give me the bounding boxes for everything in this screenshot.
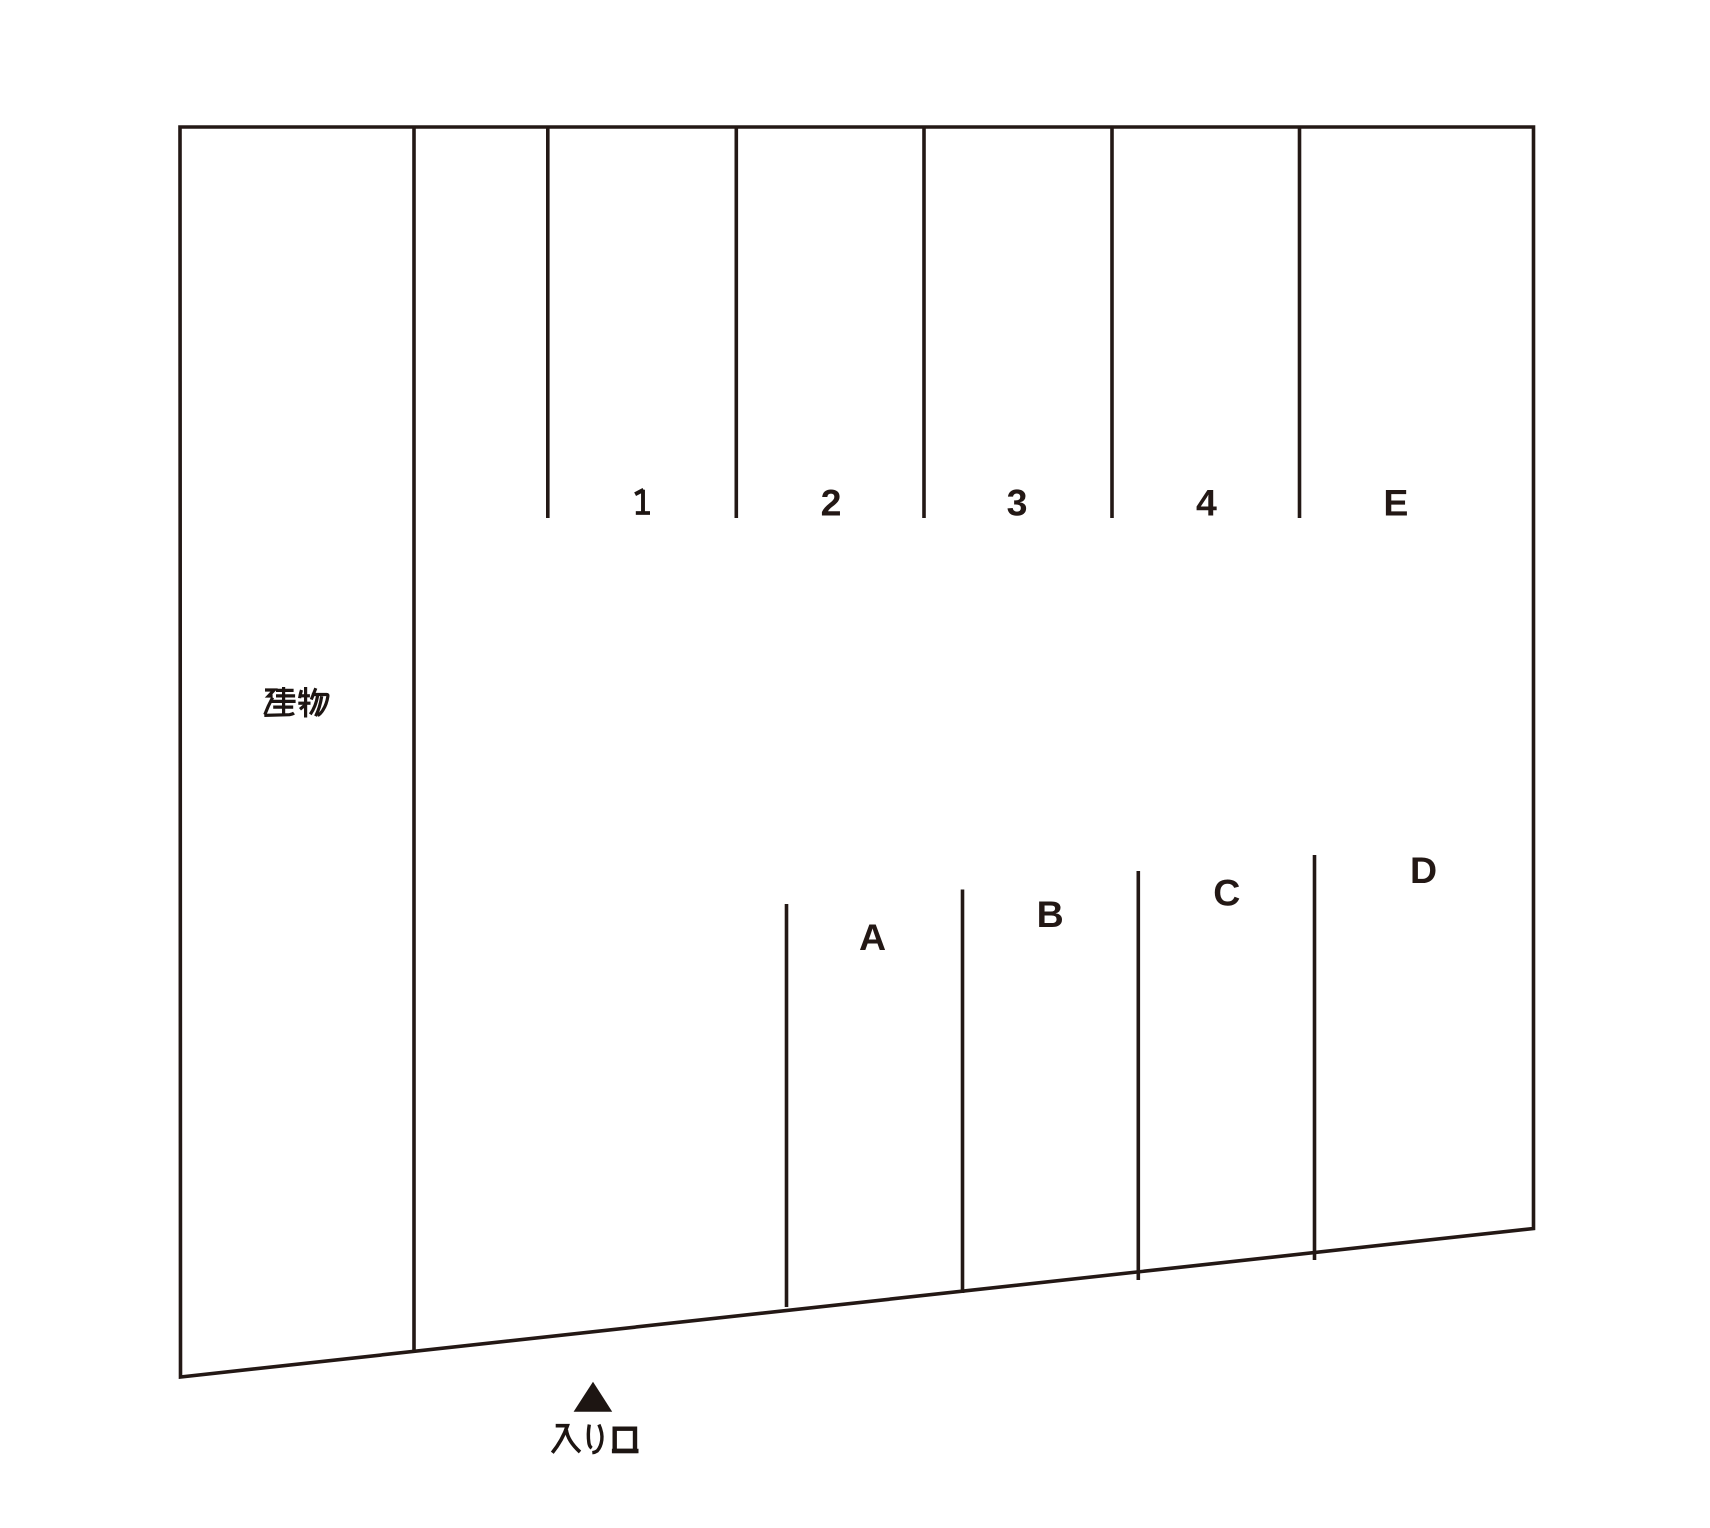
svg-text:D: D <box>1410 849 1437 891</box>
svg-text:E: E <box>1383 482 1408 524</box>
svg-text:C: C <box>1213 871 1240 913</box>
svg-text:B: B <box>1037 893 1064 935</box>
svg-text:2: 2 <box>821 482 842 524</box>
svg-text:4: 4 <box>1196 482 1217 524</box>
svg-text:A: A <box>859 916 886 958</box>
svg-text:3: 3 <box>1007 482 1028 524</box>
